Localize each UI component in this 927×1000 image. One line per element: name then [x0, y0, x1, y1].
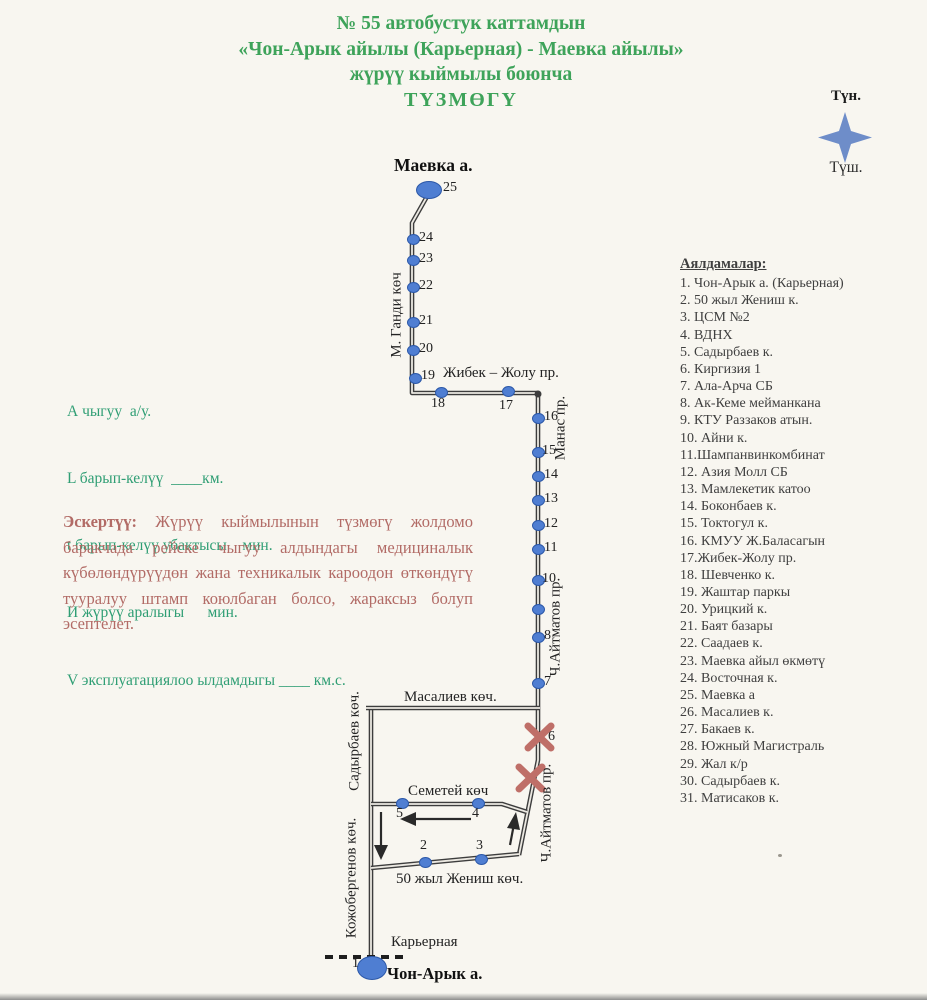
street-label-aitmatov-upper: Ч.Айтматов пр. [548, 578, 565, 677]
street-label-karernaya: Карьерная [391, 934, 458, 951]
stop-number-19: 19 [421, 368, 435, 384]
road-junction-dot [535, 391, 542, 398]
street-label-sadyrbaev: Садырбаев көч. [347, 691, 364, 791]
street-label-50-jenish: 50 жыл Жениш көч. [396, 871, 523, 888]
direction-arrow-left [400, 812, 471, 826]
stop-number-24: 24 [419, 230, 433, 246]
stop-number-2: 2 [420, 838, 427, 854]
stop-dot-1 [357, 956, 387, 980]
direction-arrow-down [374, 812, 388, 860]
stop-number-1: 1 [352, 956, 359, 972]
route-map-lines [0, 0, 927, 1000]
stop-number-5: 5 [396, 806, 403, 822]
direction-arrow-up [507, 812, 520, 845]
street-label-manas: Манас пр. [553, 396, 570, 460]
scan-speck [778, 854, 782, 857]
stop-number-17: 17 [499, 398, 513, 414]
street-label-jibek-jolu: Жибек – Жолу пр. [443, 365, 559, 382]
stop-number-22: 22 [419, 278, 433, 294]
stop-number-18: 18 [431, 396, 445, 412]
stop-number-11: 11 [544, 540, 557, 556]
street-label-masaliev: Масалиев көч. [404, 689, 497, 706]
stop-number-6: 6 [548, 729, 555, 745]
stop-number-3: 3 [476, 838, 483, 854]
street-label-m-gandi: М. Ганди көч [389, 272, 406, 358]
stop-number-21: 21 [419, 313, 433, 329]
street-label-kojobergenov: Кожобергенов көч. [344, 818, 361, 939]
scan-edge-shadow [0, 993, 927, 1000]
stop-number-20: 20 [419, 341, 433, 357]
stop-number-23: 23 [419, 251, 433, 267]
stop-number-13: 13 [544, 491, 558, 507]
terminal-label-maevka: Маевка а. [394, 155, 473, 176]
stop-dot-17 [502, 386, 515, 397]
stop-dot-25 [416, 181, 442, 199]
stop-number-14: 14 [544, 467, 558, 483]
street-label-semetei: Семетей көч [408, 783, 488, 800]
stop-dot-2 [419, 857, 432, 868]
stop-number-4: 4 [472, 806, 479, 822]
stop-number-25: 25 [443, 180, 457, 196]
stop-dot-3 [475, 854, 488, 865]
route-scheme-page: № 55 автобустук каттамдын «Чон-Арык айыл… [0, 0, 927, 1000]
street-label-aitmatov-lower: Ч.Айтматов пр. [539, 764, 556, 863]
stop-number-12: 12 [544, 516, 558, 532]
stop-dot-9 [532, 604, 545, 615]
terminal-label-chon-aryk: Чон-Арык а. [387, 964, 482, 984]
stop-number-7: 7 [544, 674, 551, 690]
